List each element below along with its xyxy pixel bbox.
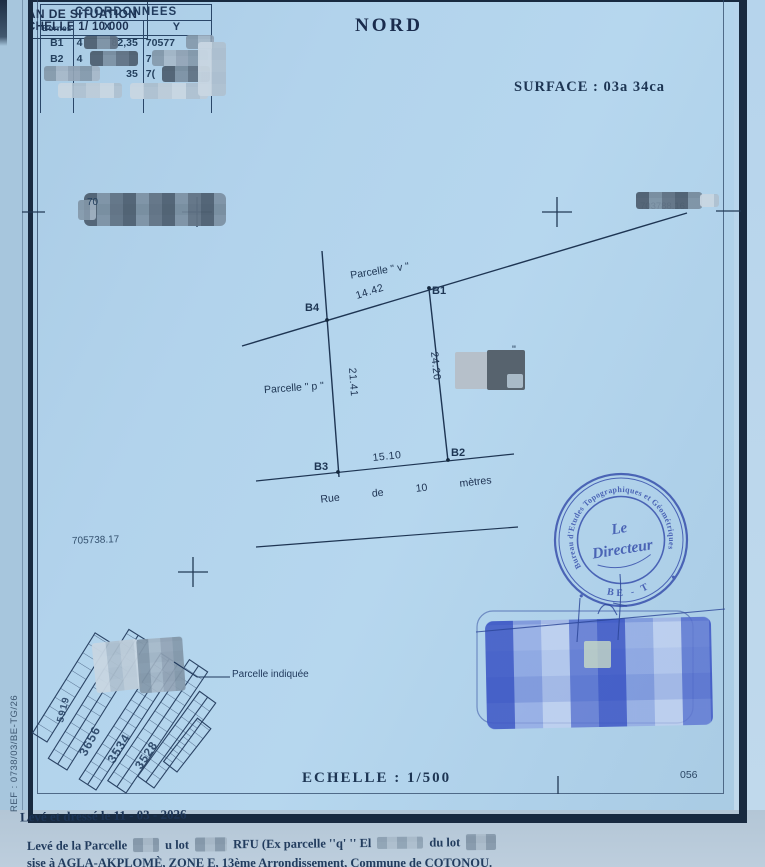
- redaction-block: [84, 193, 226, 226]
- cell-borne: B1: [41, 36, 73, 52]
- redaction-block: [44, 66, 100, 81]
- scan-left-margin: [0, 0, 28, 812]
- paper-edge-line: [22, 0, 23, 810]
- redaction-block: [636, 192, 702, 209]
- redaction-block: [198, 42, 226, 96]
- footer-location-line: sise à AGLA-AKPLOMÈ, ZONE E, 13ème Arron…: [27, 856, 492, 867]
- cell-y: 7: [146, 52, 152, 68]
- scan-edge-artifact: [0, 0, 7, 46]
- redaction-block: [700, 194, 719, 207]
- col-header-x: X: [73, 21, 142, 35]
- street-word: de: [371, 487, 384, 500]
- cell-x: 35: [126, 67, 138, 83]
- redaction-block: [84, 36, 118, 49]
- footer-text-segment: du lot: [429, 835, 460, 850]
- grid-coordinate-topleft: 70: [87, 197, 98, 208]
- footer-text-segment: u lot: [165, 837, 189, 852]
- scale-label: ECHELLE : 1/500: [302, 770, 451, 787]
- footer-text-segment: RFU (Ex parcelle ''q' '' El: [233, 836, 371, 852]
- col-header-y: Y: [142, 21, 211, 35]
- mosaic-tile: [584, 641, 611, 668]
- redaction-block: [90, 51, 138, 66]
- street-word: Rue: [320, 492, 341, 506]
- coordinates-table-title: COORDONNEES: [40, 4, 212, 21]
- redaction-block-map: [92, 639, 143, 694]
- footer-date-line: Levé et dressé le 11 - 03 - 2026: [20, 807, 187, 826]
- surface-label: SURFACE : 03a 34ca: [514, 79, 665, 96]
- grid-coordinate-left: 705738.17: [72, 534, 120, 547]
- redaction-block: [58, 83, 122, 98]
- indicated-parcel-callout: Parcelle indiquée: [232, 669, 309, 680]
- redaction-inline: [377, 837, 423, 849]
- redaction-block-parcel-number: [455, 352, 489, 389]
- sheet-number: 056: [680, 769, 698, 781]
- redaction-block: [130, 83, 208, 99]
- redaction-inline: [195, 837, 227, 851]
- col-header-bornes: Bornes: [41, 21, 73, 35]
- footer-text-segment: Levé de la Parcelle: [27, 838, 127, 854]
- cell-y: 7(: [146, 67, 155, 83]
- boundary-point-b4: B4: [305, 302, 319, 314]
- street-word: 10: [415, 482, 428, 495]
- cell-borne: B2: [41, 52, 73, 68]
- north-label: NORD: [355, 15, 423, 37]
- redaction-inline: [466, 834, 496, 850]
- table-header-row: Bornes X Y: [41, 21, 211, 36]
- redaction-inline: [133, 838, 159, 852]
- reference-vertical: REF : 0738/03/BE-TG/26: [9, 695, 20, 812]
- cell-x: 4: [77, 52, 83, 68]
- table-column-divider: [143, 21, 144, 113]
- redaction-block-map: [136, 636, 186, 693]
- redaction-notch: [507, 374, 523, 388]
- scanned-cadastral-plan: COORDONNEES Bornes X Y B1 482,35 70577 B…: [0, 0, 765, 867]
- boundary-point-b1: B1: [432, 285, 446, 297]
- cell-x: 4: [77, 36, 83, 52]
- boundary-point-b2: B2: [451, 447, 465, 459]
- boundary-point-b3: B3: [314, 461, 328, 473]
- redaction-block-signature: [485, 617, 713, 730]
